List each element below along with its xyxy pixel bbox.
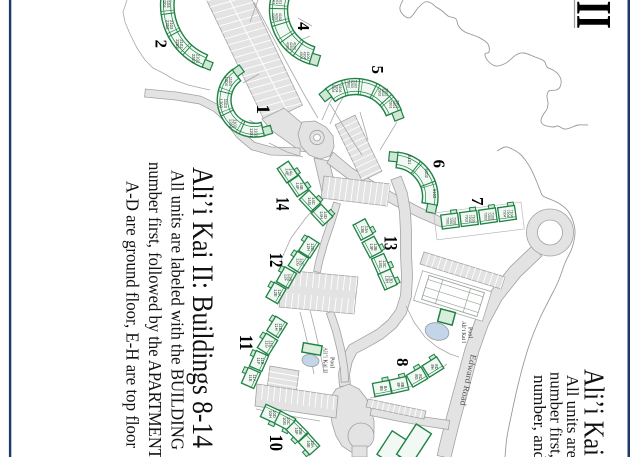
svg-text:8F: 8F [396, 383, 401, 388]
svg-text:7303: 7303 [484, 212, 488, 220]
svg-text:5304: 5304 [331, 85, 335, 93]
svg-text:All units are labeled with the: All units are labeled with the BUILDING [168, 170, 188, 450]
svg-text:14G: 14G [307, 197, 312, 205]
svg-text:4304: 4304 [299, 52, 303, 60]
svg-text:Ali’i Kai I: Ali’i Kai I [460, 321, 466, 343]
svg-text:1203: 1203 [219, 99, 224, 109]
svg-text:14E: 14E [284, 168, 289, 176]
svg-text:10: 10 [265, 435, 286, 452]
svg-text:2203: 2203 [165, 20, 170, 30]
svg-text:13H: 13H [384, 276, 389, 284]
svg-text:12: 12 [265, 253, 286, 267]
svg-text:2: 2 [152, 40, 171, 49]
svg-text:4302: 4302 [271, 13, 275, 21]
svg-text:1: 1 [252, 105, 273, 115]
svg-text:12H: 12H [306, 243, 311, 251]
svg-text:2201: 2201 [191, 54, 196, 64]
svg-text:7: 7 [468, 197, 487, 206]
svg-text:14F: 14F [295, 182, 300, 190]
svg-text:4301: 4301 [272, 0, 276, 4]
svg-text:2202: 2202 [175, 39, 180, 49]
svg-text:6: 6 [430, 160, 449, 169]
svg-text:5301: 5301 [388, 101, 392, 109]
svg-text:10F: 10F [294, 427, 299, 435]
svg-text:4: 4 [294, 22, 313, 31]
svg-text:Ali’i Kai II: Ali’i Kai II [322, 347, 329, 373]
svg-text:13G: 13G [378, 260, 383, 268]
svg-text:13F: 13F [369, 243, 374, 251]
svg-text:number first, followed by the: number first, followed by the APARTMENT [145, 162, 165, 457]
svg-text:11G: 11G [264, 340, 269, 348]
svg-text:8: 8 [393, 358, 412, 367]
svg-text:6101: 6101 [407, 155, 412, 165]
svg-text:12F: 12F [283, 274, 288, 282]
svg-text:5302: 5302 [377, 89, 381, 97]
svg-text:13: 13 [380, 236, 401, 251]
svg-text:12E: 12E [273, 289, 278, 297]
svg-text:13E: 13E [360, 226, 365, 234]
svg-text:6103: 6103 [432, 189, 437, 199]
svg-text:8H: 8H [430, 364, 435, 369]
svg-text:8E: 8E [379, 386, 384, 391]
svg-text:10H: 10H [268, 410, 273, 418]
svg-text:11E: 11E [248, 374, 253, 381]
svg-text:Pool: Pool [467, 327, 473, 338]
svg-text:5303: 5303 [347, 80, 351, 88]
svg-text:2204: 2204 [162, 0, 167, 8]
svg-text:11: 11 [235, 335, 256, 351]
svg-text:6102: 6102 [424, 169, 429, 179]
svg-text:A-D are ground floor, E-H are: A-D are ground floor, E-H are top floor [123, 181, 143, 448]
svg-text:number, and A-D are ground flo: number, and A-D are ground floor, E-H ar… [530, 375, 549, 457]
svg-text:11F: 11F [256, 358, 261, 365]
svg-text:1201: 1201 [249, 128, 254, 138]
svg-text:7301: 7301 [446, 217, 450, 225]
svg-text:Ali’i Kai II: Buildings 8-14: Ali’i Kai II: Buildings 8-14 [186, 167, 219, 448]
svg-text:1202: 1202 [229, 119, 234, 129]
svg-text:1204: 1204 [224, 77, 229, 87]
svg-text:7302: 7302 [465, 215, 469, 223]
svg-text:14: 14 [272, 197, 293, 211]
svg-text:10E: 10E [306, 440, 311, 448]
svg-text:11H: 11H [274, 323, 279, 330]
svg-text:14H: 14H [319, 211, 324, 219]
svg-text:Pool: Pool [329, 357, 336, 368]
svg-text:8G: 8G [414, 374, 419, 380]
svg-text:4303: 4303 [286, 42, 290, 50]
svg-text:10G: 10G [282, 417, 287, 425]
svg-text:5: 5 [368, 66, 387, 75]
svg-text:12G: 12G [295, 258, 300, 266]
svg-text:7304: 7304 [503, 210, 507, 218]
